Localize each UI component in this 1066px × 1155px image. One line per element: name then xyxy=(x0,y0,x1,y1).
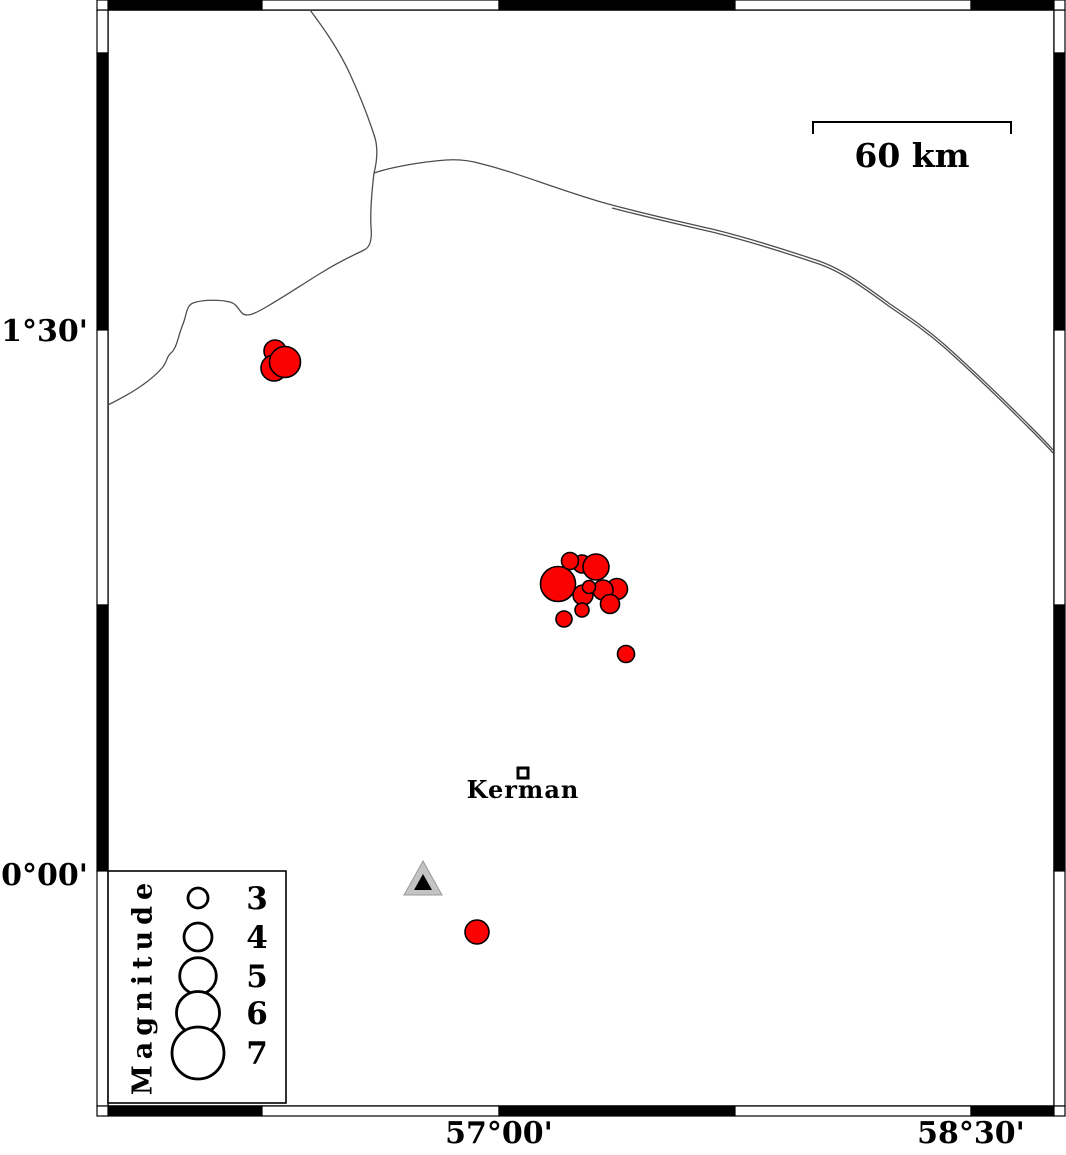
scale-bar-label: 60 km xyxy=(832,139,992,172)
legend-title: Magnitude xyxy=(130,877,157,1095)
legend-value-6: 6 xyxy=(246,996,268,1032)
earthquake-circle-2 xyxy=(270,347,301,378)
legend-circle-mag-5 xyxy=(180,958,217,995)
frame-bottom-bar xyxy=(108,1106,1054,1116)
earthquake-circle-15 xyxy=(465,920,489,944)
seismicity-map: 34567 31°30' 30°00' 57°00' 58°30' 60 km … xyxy=(0,0,1066,1155)
earthquake-circle-5 xyxy=(583,554,609,580)
frame-right-bar xyxy=(1054,10,1065,1106)
lon-tick-label-58-30: 58°30' xyxy=(891,1119,1051,1149)
earthquake-circle-12 xyxy=(556,611,572,627)
legend-value-3: 3 xyxy=(246,881,268,917)
earthquake-circle-13 xyxy=(583,581,596,594)
legend-value-7: 7 xyxy=(246,1036,268,1072)
lat-tick-label-30-00: 30°00' xyxy=(0,861,88,891)
lat-tick-label-31-30: 31°30' xyxy=(0,317,88,347)
frame-left-bar xyxy=(97,10,108,1106)
legend-circle-mag-7 xyxy=(172,1027,224,1079)
legend-circle-mag-3 xyxy=(188,888,208,908)
legend-value-4: 4 xyxy=(246,920,268,956)
earthquake-circle-9 xyxy=(601,595,620,614)
lon-tick-label-57-00: 57°00' xyxy=(419,1119,579,1149)
earthquake-circle-14 xyxy=(618,646,635,663)
earthquake-circle-6 xyxy=(541,567,576,602)
earthquake-circle-11 xyxy=(575,603,589,617)
legend-circle-mag-4 xyxy=(184,923,212,951)
city-label: Kerman xyxy=(443,778,603,802)
frame-top-bar xyxy=(108,0,1054,10)
legend-value-5: 5 xyxy=(246,959,268,995)
